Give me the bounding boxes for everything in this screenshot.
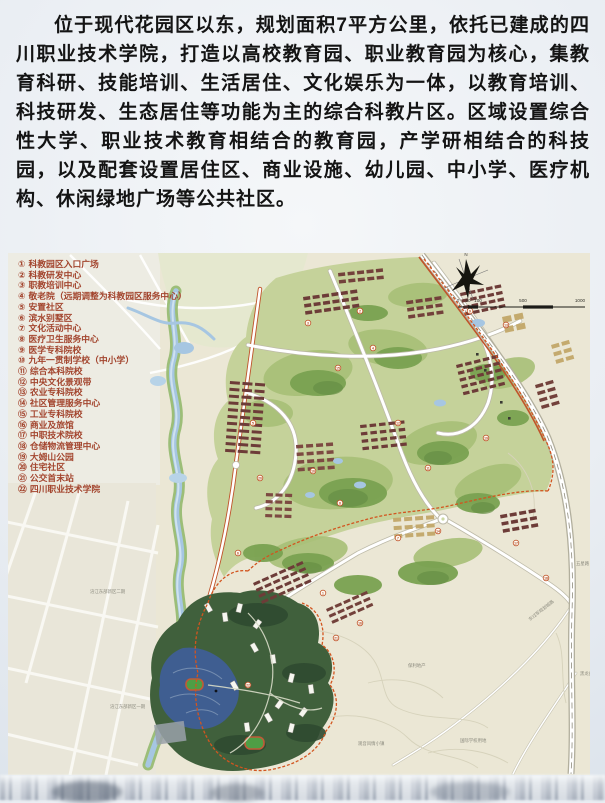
legend-item-label: 大姆山公园 bbox=[30, 452, 74, 462]
svg-text:20: 20 bbox=[258, 476, 262, 480]
map-tiny-label: 保利地产 bbox=[408, 662, 426, 669]
legend-item-label: 滨水别墅区 bbox=[28, 313, 72, 323]
legend-item: ⑬农业专科院校 bbox=[18, 387, 187, 398]
map-legend: ①科教园区入口广场②科教研发中心③职教培训中心④敬老院（远期调整为科教园区服务中… bbox=[18, 259, 187, 494]
legend-item: ④敬老院（远期调整为科教园区服务中心） bbox=[18, 291, 187, 302]
map-tiny-label: 涪江东部新区二期 bbox=[90, 588, 126, 595]
svg-text:19: 19 bbox=[484, 436, 488, 440]
legend-item-number: ⑰ bbox=[18, 430, 27, 440]
legend-item-number: ④ bbox=[18, 291, 25, 301]
svg-text:10: 10 bbox=[311, 469, 315, 473]
svg-text:5: 5 bbox=[252, 421, 254, 425]
svg-text:9: 9 bbox=[469, 309, 471, 313]
legend-item-number: ⑳ bbox=[18, 462, 27, 472]
svg-text:1: 1 bbox=[322, 591, 324, 595]
legend-item-number: ⑫ bbox=[18, 377, 27, 387]
adjacent-city-area bbox=[8, 483, 158, 775]
legend-item-number: ⑦ bbox=[18, 323, 25, 333]
cityscape-photo-strip bbox=[0, 775, 605, 800]
legend-item: ⑯商业及旅馆 bbox=[18, 420, 187, 431]
legend-item-label: 综合本科院校 bbox=[30, 366, 83, 376]
legend-item-number: ⑭ bbox=[18, 398, 27, 408]
legend-item-number: ⑪ bbox=[18, 366, 27, 376]
legend-item-label: 医学专科院校 bbox=[28, 345, 81, 355]
legend-item: ⑰中职技术院校 bbox=[18, 430, 187, 441]
legend-item-number: ㉒ bbox=[18, 484, 27, 494]
legend-item: ②科教研发中心 bbox=[18, 270, 187, 281]
legend-item-number: ⑧ bbox=[18, 334, 25, 344]
legend-item: ⑫中央文化景观带 bbox=[18, 377, 187, 388]
legend-item-label: 仓储物流管理中心 bbox=[30, 441, 100, 451]
legend-item-label: 医疗卫生服务中心 bbox=[28, 334, 98, 344]
legend-item-number: ㉑ bbox=[18, 473, 27, 483]
legend-item-label: 四川职业技术学院 bbox=[30, 484, 100, 494]
svg-text:11: 11 bbox=[426, 466, 430, 470]
legend-item: ⑱仓储物流管理中心 bbox=[18, 441, 187, 452]
legend-item: ⑧医疗卫生服务中心 bbox=[18, 334, 187, 345]
legend-item-label: 职教培训中心 bbox=[28, 280, 81, 290]
svg-text:15: 15 bbox=[336, 366, 340, 370]
svg-text:22: 22 bbox=[246, 683, 250, 687]
legend-item: ⑦文化活动中心 bbox=[18, 323, 187, 334]
legend-item: ㉒四川职业技术学院 bbox=[18, 484, 187, 495]
legend-item-number: ⑬ bbox=[18, 387, 27, 397]
map-tiny-label: 国际学校用地 bbox=[460, 737, 487, 744]
master-plan-figure: 12345678910111213141516171819202122 涪江东部… bbox=[8, 253, 590, 775]
legend-item-number: ③ bbox=[18, 280, 25, 290]
legend-item-number: ② bbox=[18, 270, 25, 280]
legend-item-label: 商业及旅馆 bbox=[30, 420, 74, 430]
legend-item-number: ⑨ bbox=[18, 345, 25, 355]
legend-item: ⑲大姆山公园 bbox=[18, 452, 187, 463]
legend-item-number: ⑤ bbox=[18, 302, 25, 312]
svg-text:3: 3 bbox=[307, 321, 309, 325]
map-tiny-label: 观音风情小镇 bbox=[358, 740, 385, 747]
legend-item-label: 中职技术院校 bbox=[30, 430, 83, 440]
legend-item-label: 公交首末站 bbox=[30, 473, 74, 483]
legend-item-number: ⑥ bbox=[18, 313, 25, 323]
legend-item-label: 社区管理服务中心 bbox=[30, 398, 100, 408]
legend-item-label: 安置社区 bbox=[28, 302, 63, 312]
photo-blur-blob bbox=[430, 782, 510, 802]
svg-text:21: 21 bbox=[334, 636, 338, 640]
legend-item-number: ⑯ bbox=[18, 420, 27, 430]
svg-text:7: 7 bbox=[397, 536, 399, 540]
legend-item-label: 科教园区入口广场 bbox=[28, 259, 98, 269]
svg-text:13: 13 bbox=[504, 323, 508, 327]
legend-item: ⑳住宅社区 bbox=[18, 462, 187, 473]
legend-item: ⑮工业专科院校 bbox=[18, 409, 187, 420]
map-tiny-label: 涪江东部新区一期 bbox=[110, 703, 146, 710]
legend-item-label: 工业专科院校 bbox=[30, 409, 83, 419]
svg-text:12: 12 bbox=[396, 421, 400, 425]
svg-text:17: 17 bbox=[514, 541, 518, 545]
legend-item-number: ⑱ bbox=[18, 441, 27, 451]
svg-text:2: 2 bbox=[359, 309, 361, 313]
svg-text:500: 500 bbox=[519, 298, 527, 303]
svg-text:50: 50 bbox=[465, 298, 471, 303]
legend-item: ③职教培训中心 bbox=[18, 280, 187, 291]
legend-item-number: ⑮ bbox=[18, 409, 27, 419]
legend-item: ⑪综合本科院校 bbox=[18, 366, 187, 377]
legend-item: ⑤安置社区 bbox=[18, 302, 187, 313]
legend-item-number: ⑩ bbox=[18, 355, 25, 365]
svg-text:100: 100 bbox=[474, 298, 482, 303]
svg-text:8: 8 bbox=[339, 501, 341, 505]
legend-item: ①科教园区入口广场 bbox=[18, 259, 187, 270]
svg-text:4: 4 bbox=[372, 346, 374, 350]
legend-item-label: 中央文化景观带 bbox=[30, 377, 92, 387]
intro-paragraph: 位于现代花园区以东，规划面积7平方公里，依托已建成的四川职业技术学院，打造以高校… bbox=[16, 11, 590, 214]
map-tiny-label: 黑龙凼 bbox=[580, 670, 590, 677]
svg-text:0: 0 bbox=[457, 298, 460, 303]
legend-item-label: 科教研发中心 bbox=[28, 270, 81, 280]
legend-item: ⑨医学专科院校 bbox=[18, 345, 187, 356]
legend-item-label: 九年一贯制学校（中小学） bbox=[28, 355, 134, 365]
photo-blur-blob bbox=[210, 784, 264, 802]
svg-text:1000: 1000 bbox=[575, 298, 586, 303]
svg-text:6: 6 bbox=[237, 551, 239, 555]
legend-item-label: 文化活动中心 bbox=[28, 323, 81, 333]
svg-text:14: 14 bbox=[436, 529, 440, 533]
legend-item-number: ⑲ bbox=[18, 452, 27, 462]
svg-text:16: 16 bbox=[358, 621, 362, 625]
svg-text:18: 18 bbox=[544, 576, 548, 580]
svg-text:N: N bbox=[464, 253, 467, 257]
legend-item: ⑥滨水别墅区 bbox=[18, 313, 187, 324]
legend-item-label: 住宅社区 bbox=[30, 462, 65, 472]
legend-item: ⑩九年一贯制学校（中小学） bbox=[18, 355, 187, 366]
legend-item-label: 敬老院（远期调整为科教园区服务中心） bbox=[28, 291, 186, 301]
legend-item-label: 农业专科院校 bbox=[30, 387, 83, 397]
legend-item: ㉑公交首末站 bbox=[18, 473, 187, 484]
legend-item: ⑭社区管理服务中心 bbox=[18, 398, 187, 409]
map-tiny-label: 五星路 bbox=[576, 560, 590, 567]
legend-item-number: ① bbox=[18, 259, 25, 269]
